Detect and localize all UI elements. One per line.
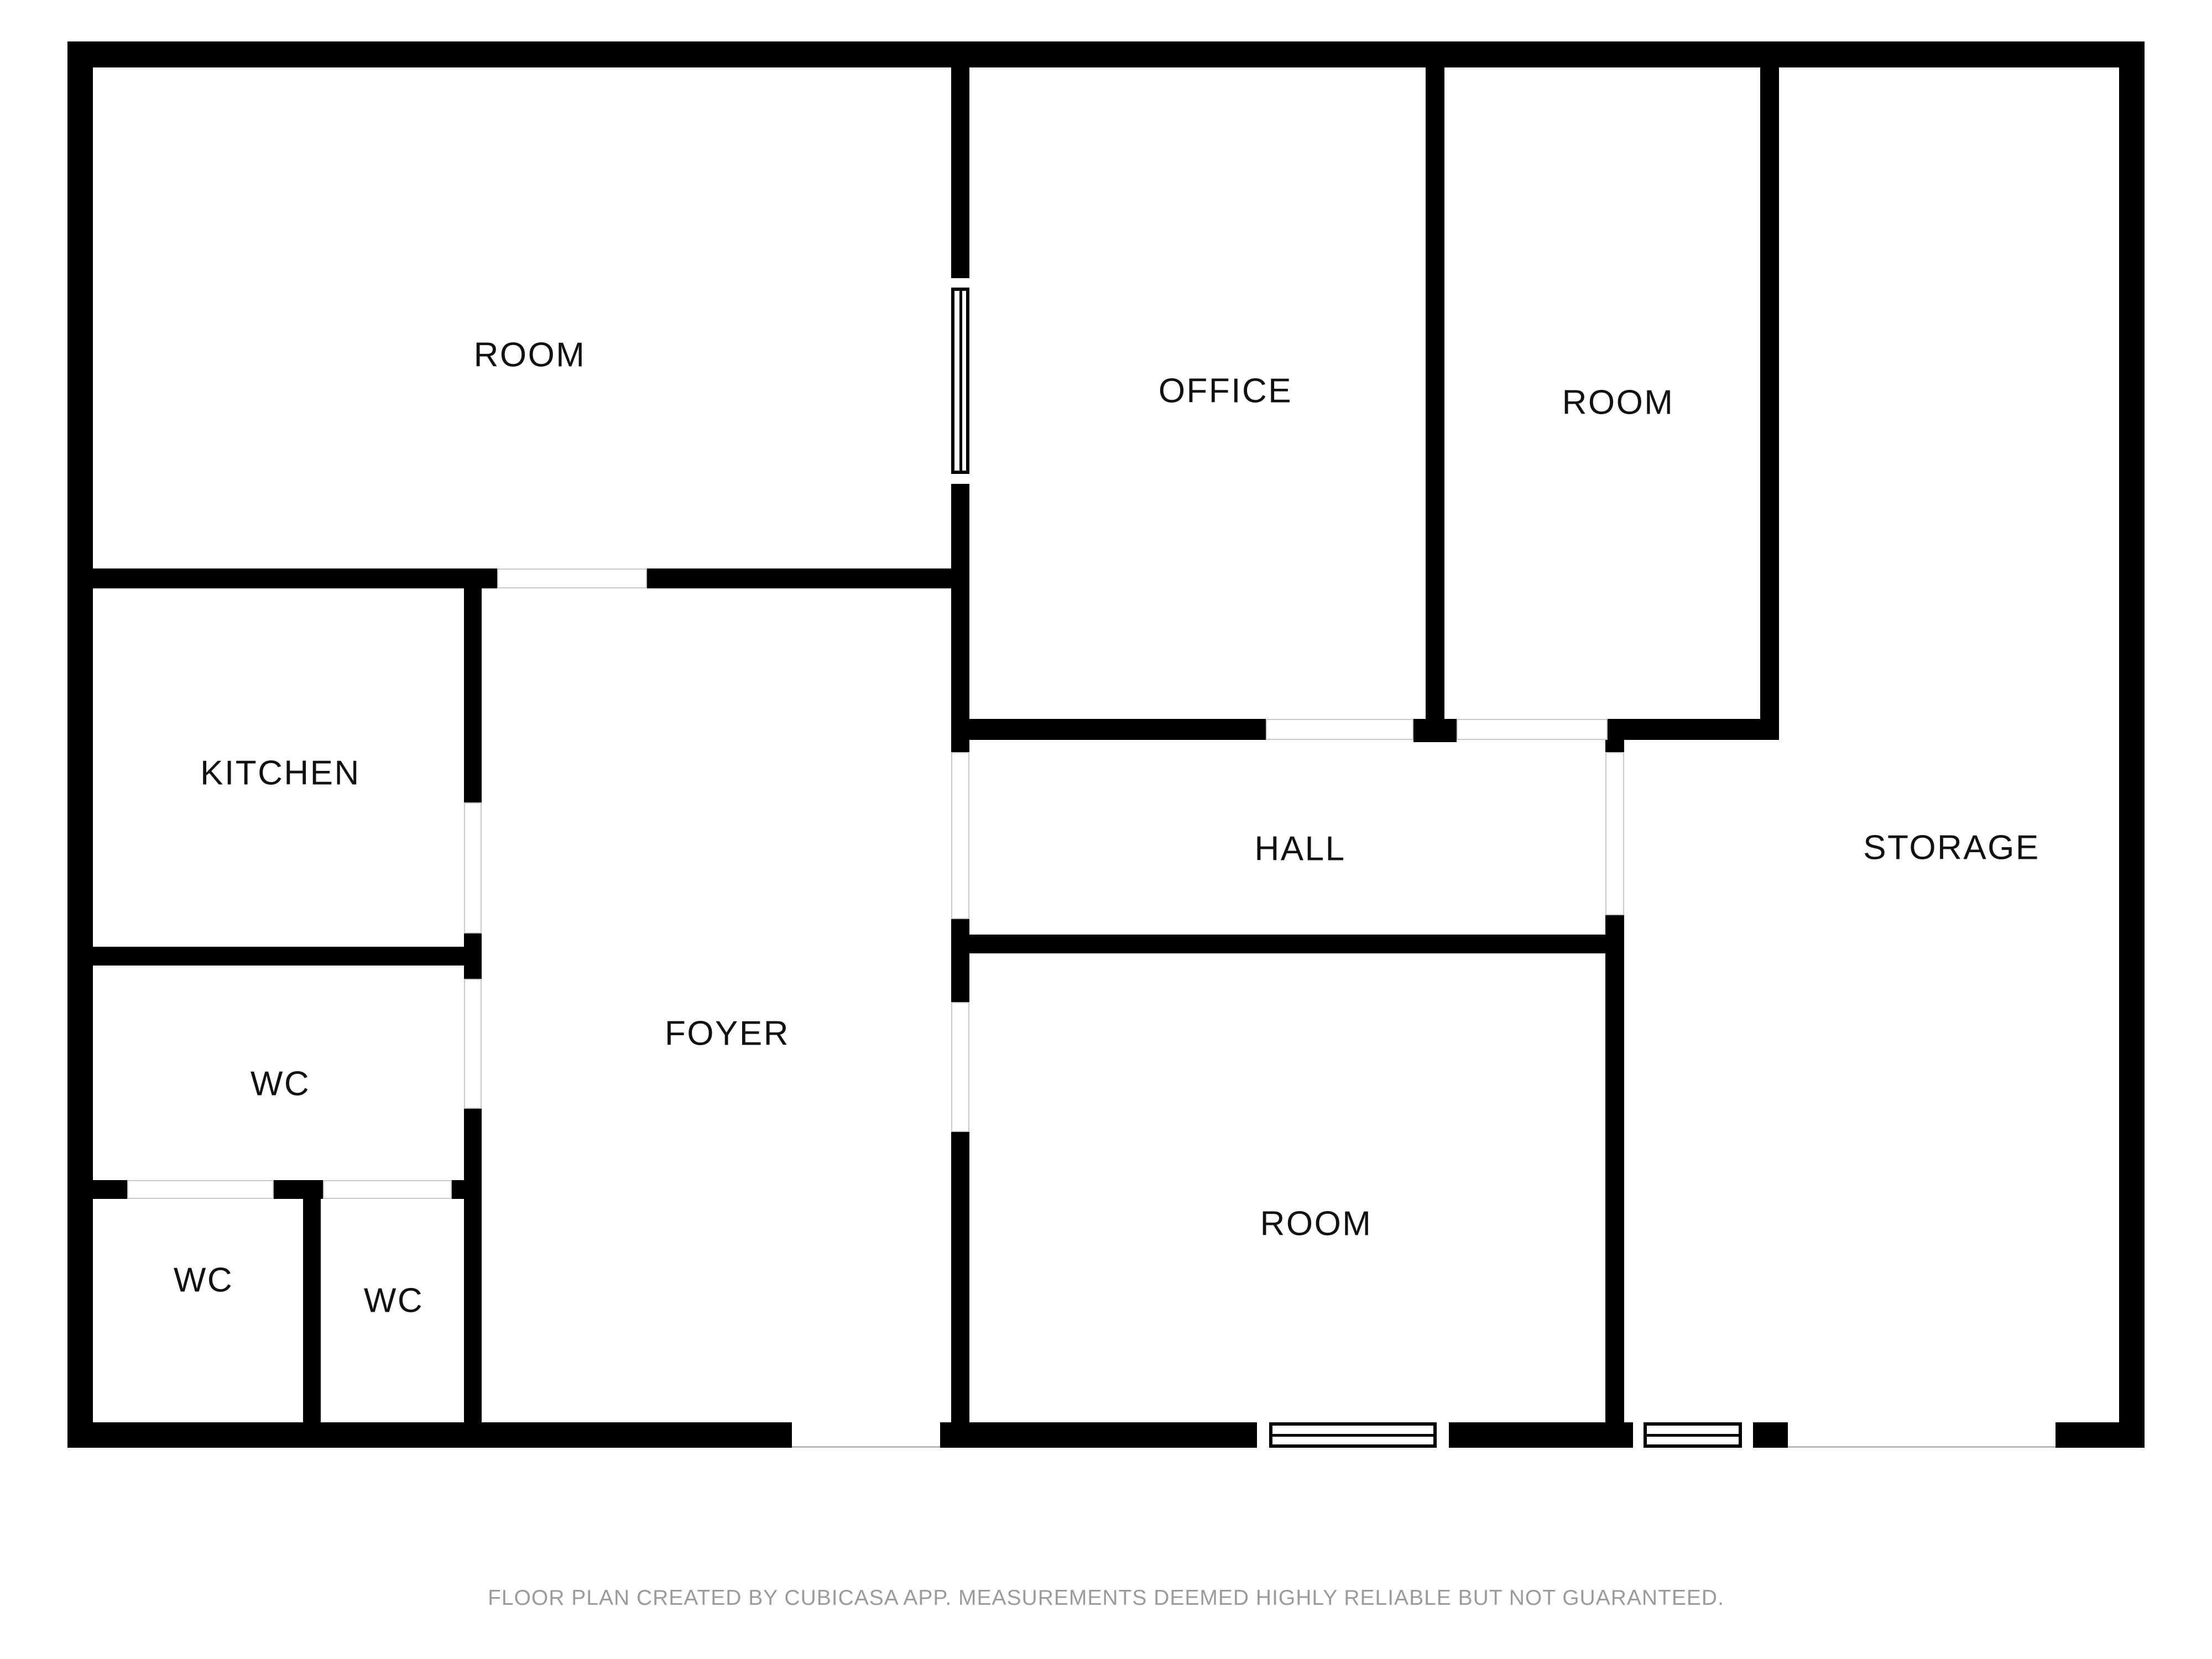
wall-foyer-right-d xyxy=(951,1132,969,1422)
wall-kitchen-bottom xyxy=(67,947,482,966)
window-mid-line xyxy=(1644,1434,1742,1437)
wall-foyer-right-b xyxy=(951,484,969,752)
storage-side-opening xyxy=(1788,1422,2056,1448)
window-room-bottom xyxy=(1257,1422,1449,1448)
room-label-office: OFFICE xyxy=(1159,372,1292,411)
wall-kitchen-top-a xyxy=(67,568,497,588)
window-mid-line xyxy=(959,288,962,474)
door-office xyxy=(1266,719,1413,740)
door-room-top-right xyxy=(1457,719,1608,740)
entry-opening xyxy=(792,1422,940,1448)
wall-foyer-right-a xyxy=(951,67,969,278)
room-label-room-bottom: ROOM xyxy=(1260,1204,1373,1244)
wall-wc-top-b xyxy=(274,1180,323,1199)
wall-hall-top-pier xyxy=(1413,719,1457,742)
window-office-west xyxy=(951,278,969,484)
room-label-hall: HALL xyxy=(1254,830,1345,869)
wall-hall-bottom xyxy=(969,935,1624,953)
room-label-wc-middle: WC xyxy=(251,1065,310,1104)
room-label-room-top-left: ROOM xyxy=(474,336,586,375)
floor-plan: ROOM OFFICE ROOM KITCHEN HALL STORAGE FO… xyxy=(0,0,2212,1659)
wall-hall-storage-b xyxy=(1605,915,1624,1422)
wall-wc-divider xyxy=(303,1180,321,1422)
wall-kitchen-right-a xyxy=(464,588,482,802)
outer-wall-left xyxy=(67,41,93,1448)
outer-wall-right xyxy=(2119,41,2145,1448)
wall-kitchen-right-c xyxy=(464,1109,482,1422)
wall-wc-top-c xyxy=(452,1180,482,1199)
room-label-room-top-right: ROOM xyxy=(1562,383,1674,422)
room-label-wc-bottom-center: WC xyxy=(364,1281,424,1321)
window-mid-line xyxy=(1269,1434,1437,1437)
wall-hall-top-b xyxy=(1608,719,1779,740)
wall-room-storage xyxy=(1760,67,1779,719)
room-label-storage: STORAGE xyxy=(1863,828,2040,868)
door-wc-middle xyxy=(464,979,482,1109)
wall-wc-top-a xyxy=(67,1180,127,1199)
door-kitchen xyxy=(464,802,482,933)
window-storage-bottom xyxy=(1633,1422,1753,1448)
door-foyer-room xyxy=(951,1002,969,1132)
wall-kitchen-top-b xyxy=(647,568,969,588)
door-wc-bottom-left xyxy=(127,1180,274,1199)
footer-disclaimer: FLOOR PLAN CREATED BY CUBICASA APP. MEAS… xyxy=(488,1586,1724,1610)
outer-wall-bottom-right xyxy=(2056,1422,2145,1448)
wall-hall-top-a xyxy=(969,719,1266,740)
room-label-wc-bottom-left: WC xyxy=(174,1261,233,1300)
door-wc-bottom-center xyxy=(323,1180,452,1199)
wall-foyer-right-c xyxy=(951,919,969,1002)
wall-office-room-divider xyxy=(1426,67,1444,719)
door-foyer-hall xyxy=(951,752,969,919)
outer-wall-bottom-left xyxy=(67,1422,792,1448)
door-top-room xyxy=(497,568,647,588)
door-storage xyxy=(1605,752,1624,915)
room-label-foyer: FOYER xyxy=(665,1014,790,1053)
outer-wall-top xyxy=(67,41,2145,67)
room-label-kitchen: KITCHEN xyxy=(200,754,361,793)
